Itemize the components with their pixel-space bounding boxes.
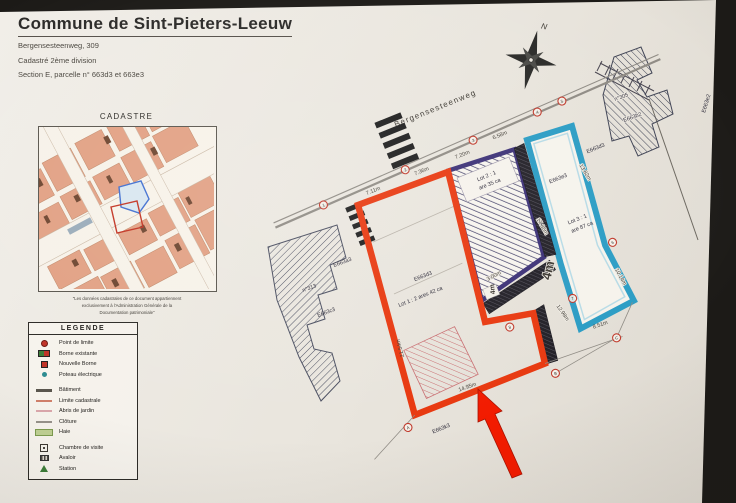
photo-of-survey-document: Commune de Sint-Pieters-Leeuw Bergensest… (0, 0, 736, 503)
highlight-arrow (478, 389, 522, 478)
annotation-layer (0, 0, 736, 503)
